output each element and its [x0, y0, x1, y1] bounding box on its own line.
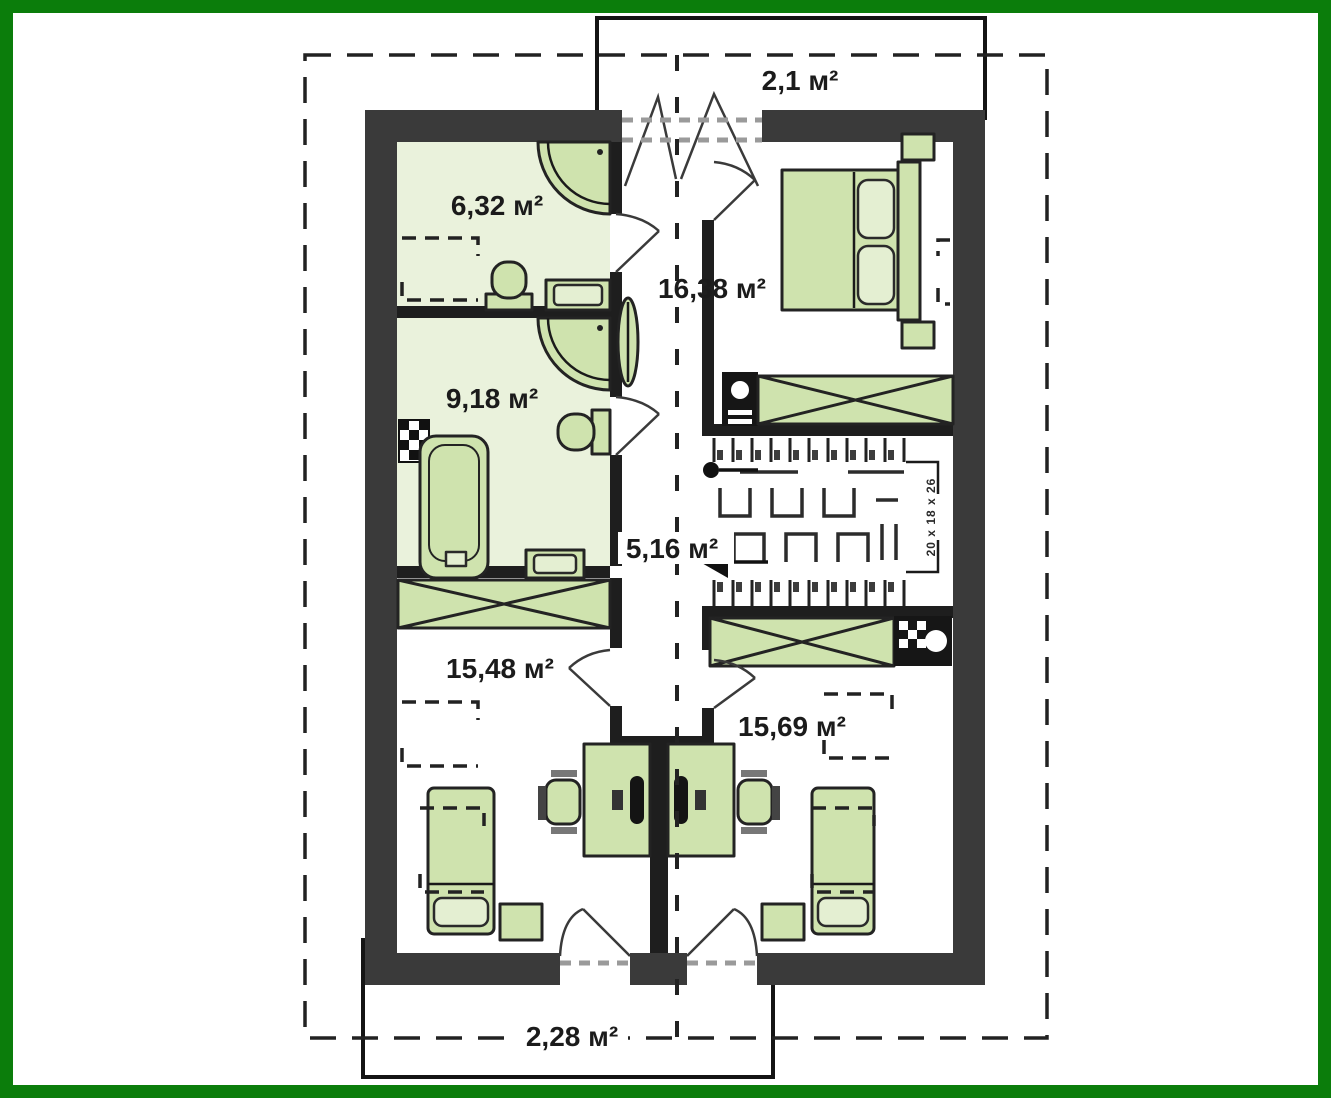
keyboard-icon — [695, 790, 706, 810]
headboard — [898, 162, 920, 320]
wall-top-right — [762, 110, 985, 142]
wall-central-divider — [650, 736, 668, 953]
pillow — [858, 246, 894, 304]
keyboard-icon — [612, 790, 623, 810]
wardrobe-icon — [758, 376, 953, 424]
area-label-hallway: 5,16 м² — [626, 533, 718, 564]
toilet-bowl-icon — [558, 414, 594, 450]
bathtub-icon — [420, 436, 488, 578]
stair-start-dot — [703, 462, 719, 478]
bathtub-faucet — [446, 552, 466, 566]
wall-bottom-right — [757, 953, 985, 985]
pillow — [818, 898, 868, 926]
area-label-balcony-bottom: 2,28 м² — [526, 1021, 618, 1052]
wall-bedroom-hall — [702, 220, 714, 424]
monitor-icon — [630, 776, 644, 824]
area-label-room-left: 15,48 м² — [446, 653, 554, 684]
nightstand-icon — [902, 134, 934, 160]
wall-bath-hall-1 — [610, 142, 622, 214]
nightstand-icon — [762, 904, 804, 940]
sink-basin — [554, 285, 602, 305]
area-label-bath-big: 9,18 м² — [446, 383, 538, 414]
hallway — [618, 298, 638, 386]
wardrobe-icon — [398, 580, 610, 628]
floor-plan-page: 20 x 18 x 26 — [0, 0, 1331, 1098]
shower-head-icon — [597, 325, 603, 331]
single-bed-icon — [428, 788, 494, 934]
wall-roomright-hall-2 — [702, 708, 714, 748]
desk-icon — [584, 744, 650, 856]
nightstand-icon — [902, 322, 934, 348]
toilet-bowl-icon — [492, 262, 526, 298]
wall-roomleft-hall-2 — [610, 706, 622, 748]
floor-plan-canvas: 20 x 18 x 26 — [0, 0, 1331, 1098]
wall-bottom-left — [365, 953, 560, 985]
wardrobe-icon — [710, 618, 894, 666]
area-label-balcony-top: 2,1 м² — [762, 65, 839, 96]
wall-right — [953, 110, 985, 985]
wall-left — [365, 110, 397, 985]
pillow — [434, 898, 488, 926]
radiator-stove-icon — [722, 372, 758, 426]
wall-roomleft-hall-1 — [610, 578, 622, 648]
nightstand-icon — [500, 904, 542, 940]
single-bed-icon — [812, 788, 874, 934]
shower-head-icon — [597, 149, 603, 155]
area-label-room-right: 15,69 м² — [738, 711, 846, 742]
stair-dimension-label: 20 x 18 x 26 — [924, 478, 938, 557]
area-label-bedroom: 16,38 м² — [658, 273, 766, 304]
desk-icon — [668, 744, 734, 856]
wall-top-left — [365, 110, 622, 142]
stove-counter-icon — [894, 616, 952, 666]
sink-basin — [534, 555, 576, 573]
area-label-bath-small: 6,32 м² — [451, 190, 543, 221]
pillow — [858, 180, 894, 238]
